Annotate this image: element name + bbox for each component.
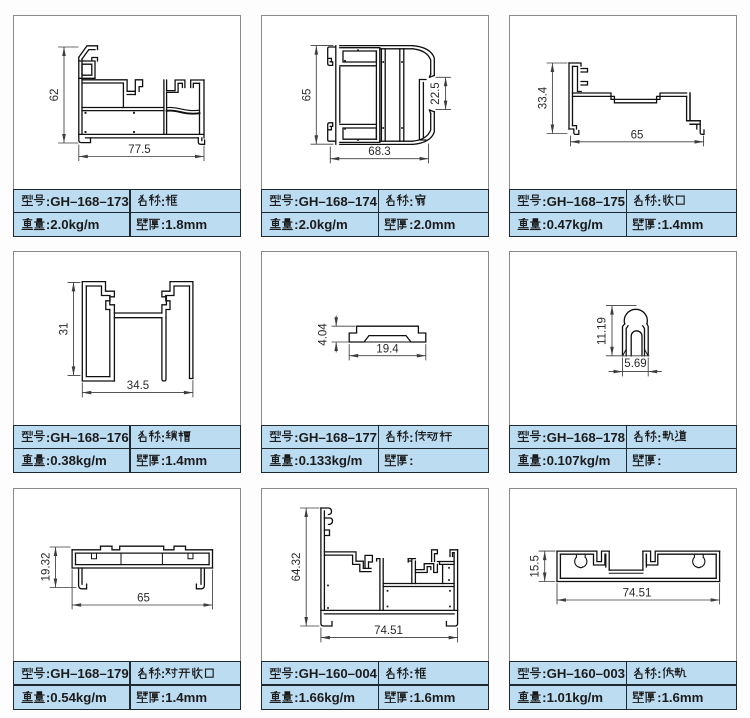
- svg-text:74.51: 74.51: [374, 625, 403, 637]
- svg-text:15.5: 15.5: [529, 555, 541, 577]
- svg-text:62: 62: [49, 89, 61, 102]
- svg-text:68.3: 68.3: [368, 146, 390, 158]
- svg-text:4.04: 4.04: [317, 323, 329, 346]
- svg-text:31: 31: [58, 323, 70, 336]
- svg-text:65: 65: [137, 592, 150, 604]
- svg-text:11.19: 11.19: [596, 317, 608, 345]
- svg-text:65: 65: [301, 89, 313, 102]
- svg-text:74.51: 74.51: [622, 587, 651, 599]
- svg-text:22.5: 22.5: [430, 82, 442, 104]
- svg-text:34.5: 34.5: [126, 380, 148, 392]
- svg-text:19.32: 19.32: [40, 552, 52, 581]
- svg-text:64.32: 64.32: [291, 552, 303, 581]
- svg-text:5.69: 5.69: [624, 358, 646, 370]
- svg-text:77.5: 77.5: [128, 144, 150, 156]
- svg-text:33.4: 33.4: [537, 86, 549, 109]
- svg-text:19.4: 19.4: [376, 343, 399, 355]
- svg-text:65: 65: [630, 129, 643, 141]
